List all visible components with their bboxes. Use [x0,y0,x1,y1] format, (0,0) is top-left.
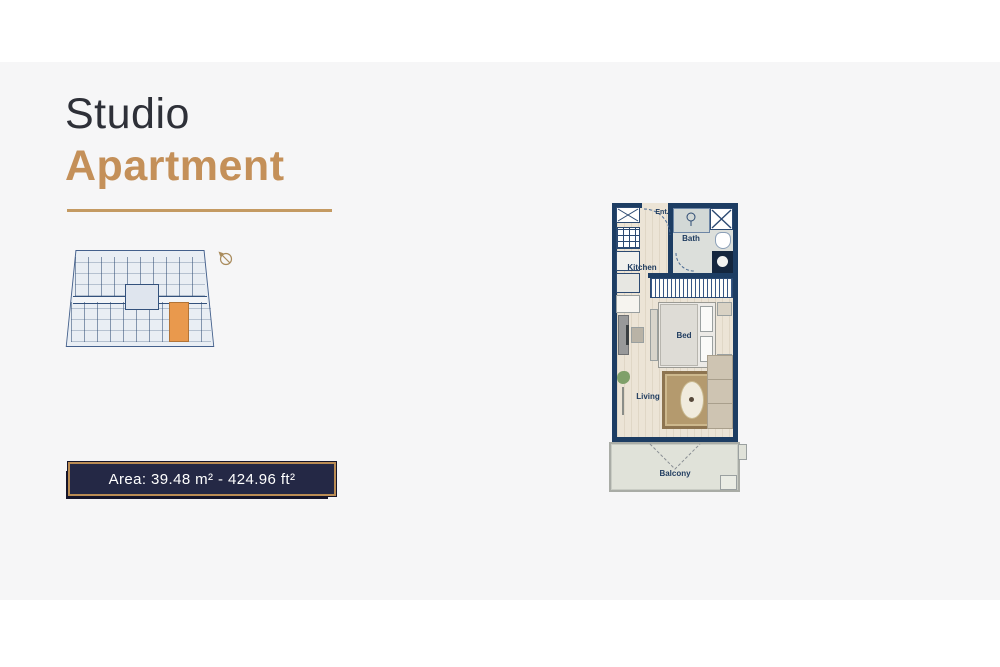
title-line-1: Studio [65,88,285,140]
bed-label: Bed [672,331,696,340]
key-plan-highlight-unit [169,302,189,342]
kitchen-label: Kitchen [622,263,662,272]
living-label: Living [632,392,664,401]
area-badge: Area: 39.48 m² - 424.96 ft² [68,462,336,496]
balcony-pillar [738,444,747,460]
area-badge-label: Area: 39.48 m² - 424.96 ft² [109,471,296,488]
plan-linework [612,203,738,492]
page-stage: Studio Apartment Area: 39.48 m² - 424.96… [0,0,1000,667]
title-line-2: Apartment [65,140,285,192]
key-plan-elevator-core [125,284,159,310]
floor-plan: Ent. Bath Kitchen Bed Living Balcony [612,203,738,492]
page-title: Studio Apartment [65,88,285,193]
compass-north-arrow-icon [217,250,233,266]
entrance-label: Ent. [652,209,672,216]
title-underline [67,209,332,212]
key-plan [65,250,215,347]
balcony-label: Balcony [654,469,696,478]
bath-label: Bath [678,234,704,243]
